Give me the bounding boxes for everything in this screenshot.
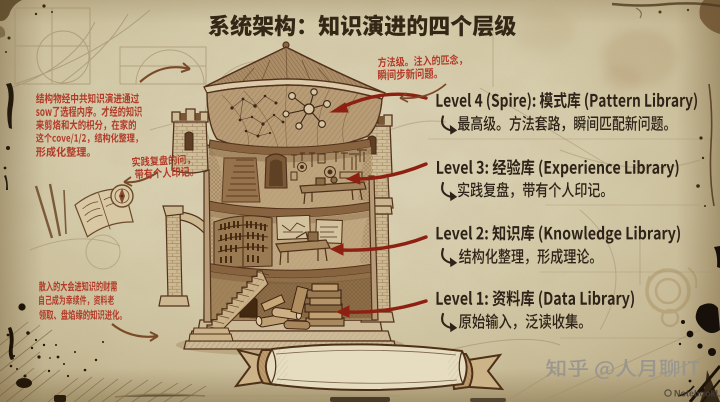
- svg-text:NotebookLM: NotebookLM: [674, 389, 720, 399]
